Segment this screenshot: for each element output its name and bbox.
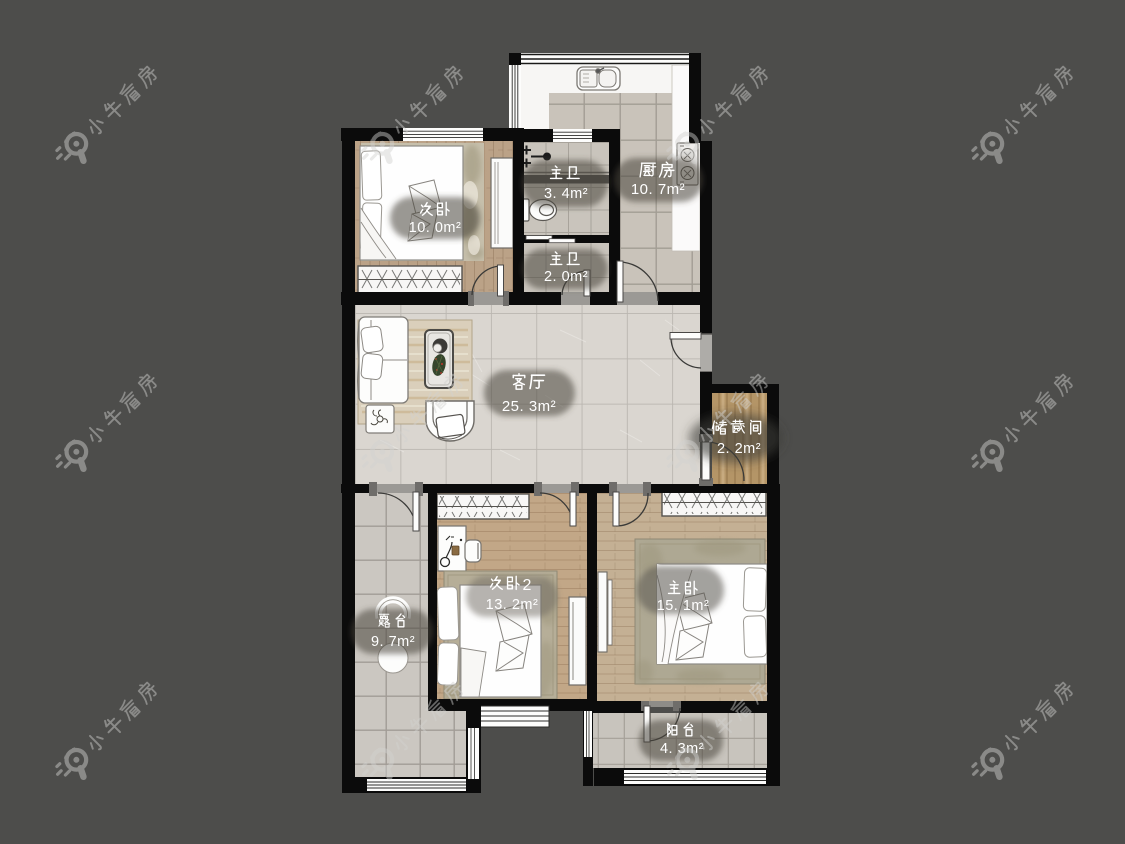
- svg-text:10. 7m²: 10. 7m²: [631, 181, 685, 198]
- svg-text:9. 7m²: 9. 7m²: [371, 634, 415, 650]
- svg-text:15. 1m²: 15. 1m²: [657, 598, 710, 614]
- svg-text:25. 3m²: 25. 3m²: [502, 398, 556, 415]
- svg-text:10. 0m²: 10. 0m²: [409, 220, 462, 236]
- svg-text:13. 2m²: 13. 2m²: [486, 597, 539, 613]
- svg-text:2: 2: [523, 577, 532, 594]
- svg-text:3. 4m²: 3. 4m²: [544, 186, 588, 202]
- svg-text:2. 2m²: 2. 2m²: [717, 441, 761, 457]
- svg-text:2. 0m²: 2. 0m²: [544, 269, 588, 285]
